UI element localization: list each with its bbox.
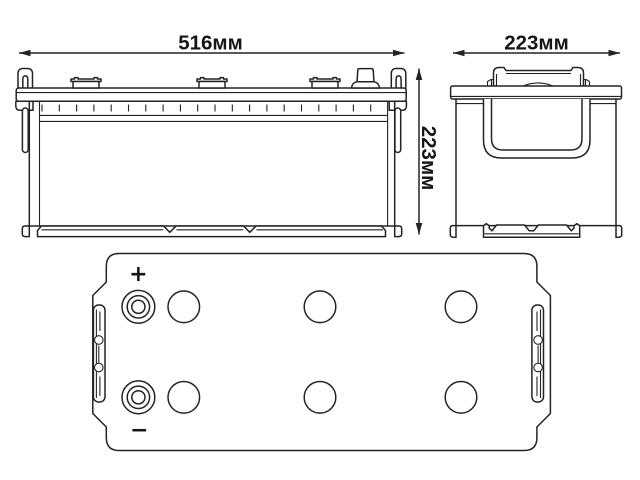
side-depth-dimension: 223мм [453,32,620,57]
right-handle-rail [532,305,544,402]
front-width-dimension: 516мм [19,32,405,57]
filler-cap [168,291,200,323]
negative-polarity-mark: − [130,418,148,443]
cell-tick-marks [42,105,371,112]
front-base [22,226,401,237]
side-view: 223мм [450,32,621,238]
negative-terminal [122,381,155,414]
arrow-right-icon [609,50,621,57]
positive-polarity-mark: + [129,262,147,287]
filler-cap [445,291,477,323]
side-handle-loop [456,99,616,158]
positive-terminal [122,290,155,323]
front-right-handle-bar [389,101,406,152]
front-left-handle-bar [16,101,33,152]
front-view: 516мм [16,32,440,237]
arrow-right-icon [393,50,405,57]
diagram-canvas: 516мм [0,0,640,480]
front-height-dimension: 223мм [416,69,440,235]
side-lid [451,86,622,99]
arrow-left-icon [19,50,31,57]
filler-cap [445,382,477,414]
arrow-left-icon [453,50,465,57]
top-view-outline [93,254,551,451]
side-depth-label: 223мм [504,32,569,55]
filler-cap [168,382,200,414]
front-body [29,101,394,226]
terminal-post [352,69,380,88]
left-handle-rail [93,305,105,402]
side-top-handle [488,68,590,87]
filler-cap [304,382,336,414]
filler-cap [304,291,336,323]
vent-cap [310,78,340,88]
top-view: + − [93,254,551,451]
battery-dimensions-diagram: 516мм [0,0,640,480]
front-height-label: 223мм [417,126,440,191]
front-lid [16,88,406,101]
arrow-up-icon [416,69,423,81]
front-width-label: 516мм [178,32,243,55]
arrow-down-icon [416,223,423,235]
vent-cap [71,78,101,88]
vent-cap [197,78,227,88]
